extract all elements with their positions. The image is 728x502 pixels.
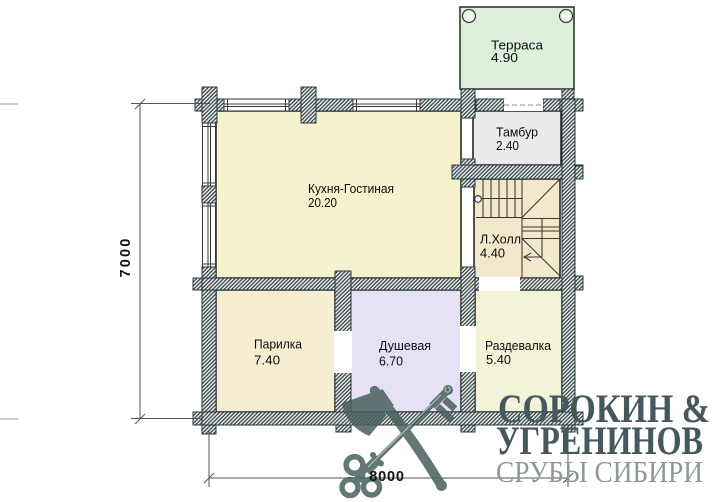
- svg-text:20.20: 20.20: [308, 195, 337, 210]
- svg-text:7.40: 7.40: [254, 353, 280, 368]
- svg-text:Душевая: Душевая: [379, 338, 431, 353]
- svg-text:5.40: 5.40: [486, 352, 511, 367]
- svg-text:СРУБЫ СИБИРИ: СРУБЫ СИБИРИ: [496, 454, 703, 489]
- svg-text:4.90: 4.90: [491, 50, 518, 65]
- svg-text:6.70: 6.70: [379, 354, 403, 369]
- svg-text:2.40: 2.40: [496, 138, 519, 153]
- svg-text:4.40: 4.40: [480, 246, 505, 261]
- svg-text:7000: 7000: [118, 236, 134, 277]
- svg-text:Раздевалка: Раздевалка: [485, 338, 552, 353]
- svg-text:Кухня-Гостиная: Кухня-Гостиная: [308, 181, 394, 196]
- svg-text:Л.Холл: Л.Холл: [480, 232, 521, 247]
- svg-text:Парилка: Парилка: [254, 337, 303, 352]
- svg-text:8000: 8000: [369, 469, 404, 485]
